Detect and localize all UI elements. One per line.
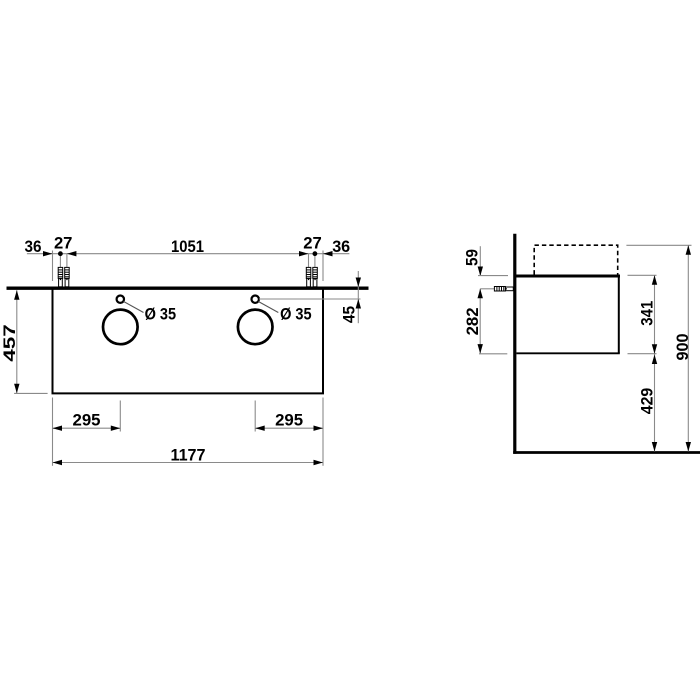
svg-text:900: 900 xyxy=(673,334,692,361)
svg-text:295: 295 xyxy=(73,410,101,429)
svg-text:341: 341 xyxy=(638,301,657,326)
svg-text:429: 429 xyxy=(638,388,657,415)
svg-text:27: 27 xyxy=(54,234,73,253)
svg-text:457: 457 xyxy=(0,324,19,362)
svg-text:59: 59 xyxy=(463,249,482,266)
svg-text:36: 36 xyxy=(25,237,42,256)
svg-text:45: 45 xyxy=(339,306,358,323)
svg-text:295: 295 xyxy=(275,410,303,429)
svg-text:1177: 1177 xyxy=(171,445,206,464)
svg-text:282: 282 xyxy=(463,307,482,335)
svg-text:36: 36 xyxy=(332,237,350,256)
svg-text:27: 27 xyxy=(303,234,322,253)
svg-text:Ø 35: Ø 35 xyxy=(280,305,312,324)
svg-text:Ø 35: Ø 35 xyxy=(145,305,177,324)
svg-text:1051: 1051 xyxy=(171,237,204,256)
